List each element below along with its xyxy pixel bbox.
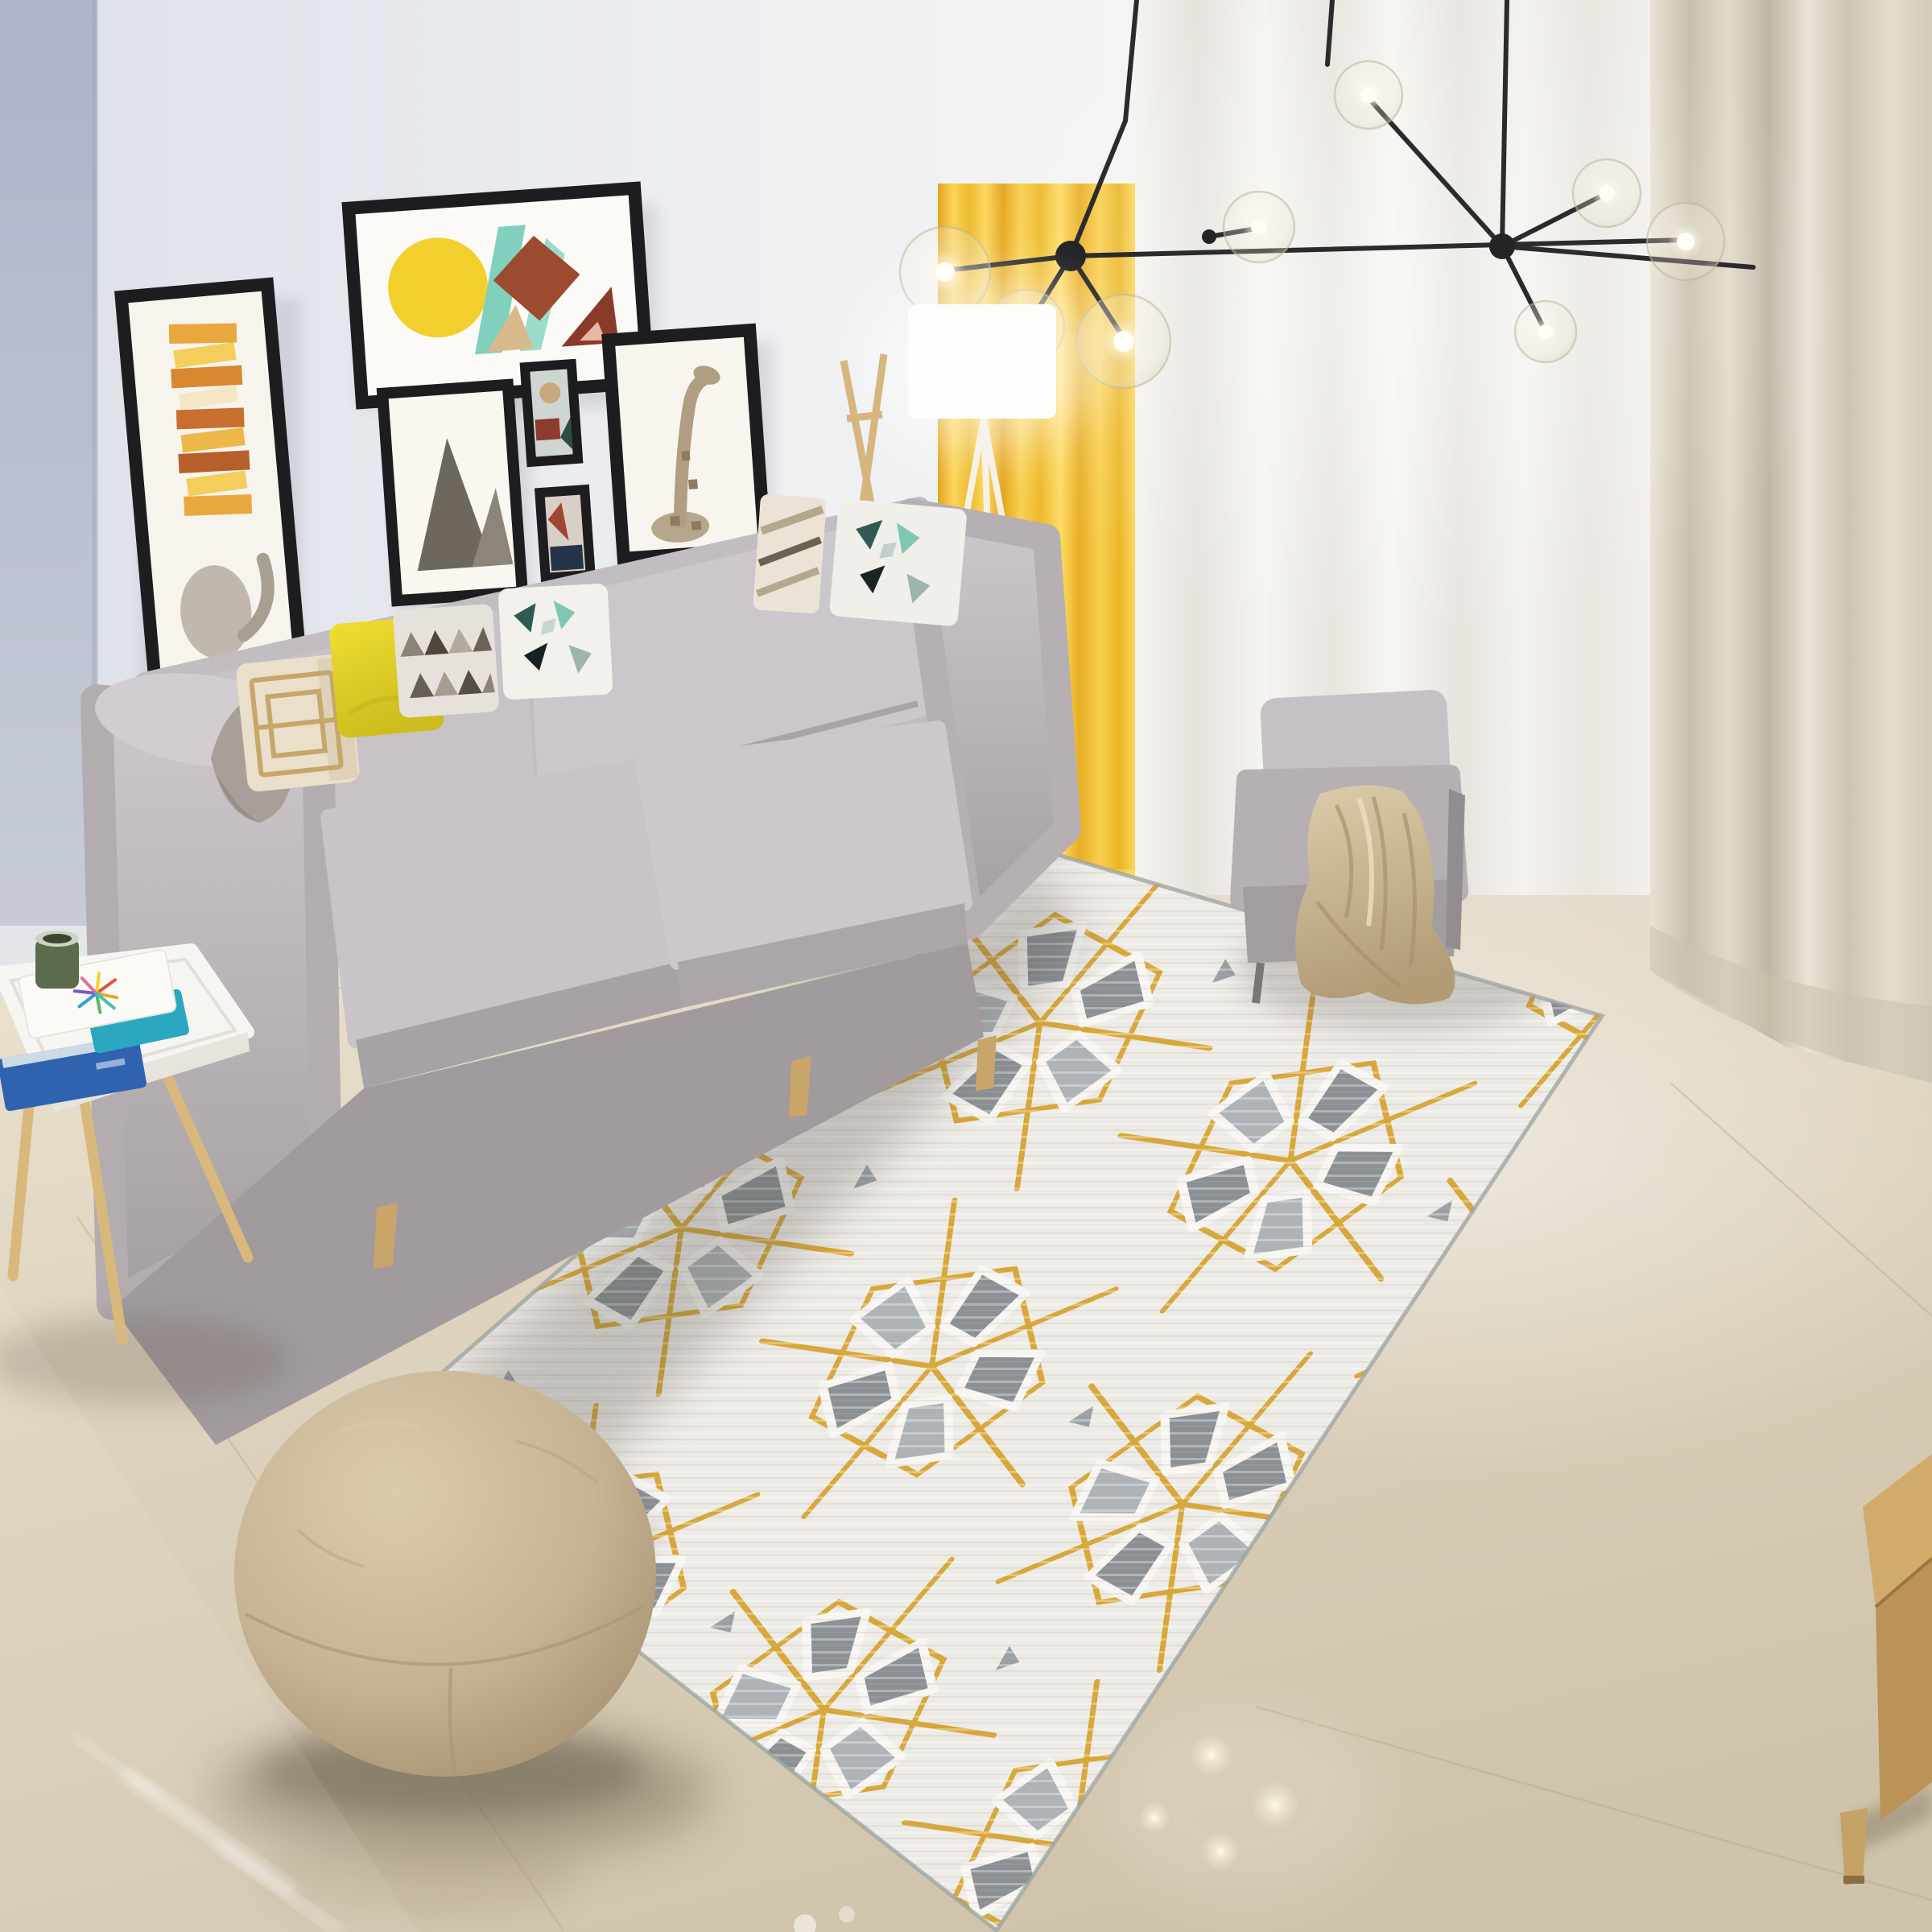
wall-frame-photo-small-top <box>520 359 584 468</box>
left-wall <box>0 0 97 997</box>
chandelier-hub <box>1055 241 1086 271</box>
chandelier-joint <box>1202 229 1216 244</box>
lamp-shade <box>908 304 1056 419</box>
frame-photo <box>530 369 572 457</box>
candle-jar <box>35 931 79 989</box>
armchair <box>1240 689 1465 1004</box>
pillow-teal-triangles-2 <box>829 498 968 626</box>
living-room-photo <box>0 0 1932 1932</box>
wall-frame-mountains <box>377 378 529 606</box>
chandelier-hub <box>1489 233 1515 259</box>
pillow-gray-diamond <box>393 604 500 718</box>
cabinet-leg-cap <box>1843 1876 1864 1884</box>
wall-frame-giraffe <box>601 324 772 566</box>
wall-frame-photo-small-bottom <box>535 485 596 583</box>
pillow-teal-triangles <box>498 584 613 700</box>
pillow-beige-chevron <box>753 493 827 613</box>
room-canvas <box>0 0 1932 1932</box>
pouf-body <box>234 1371 656 1777</box>
